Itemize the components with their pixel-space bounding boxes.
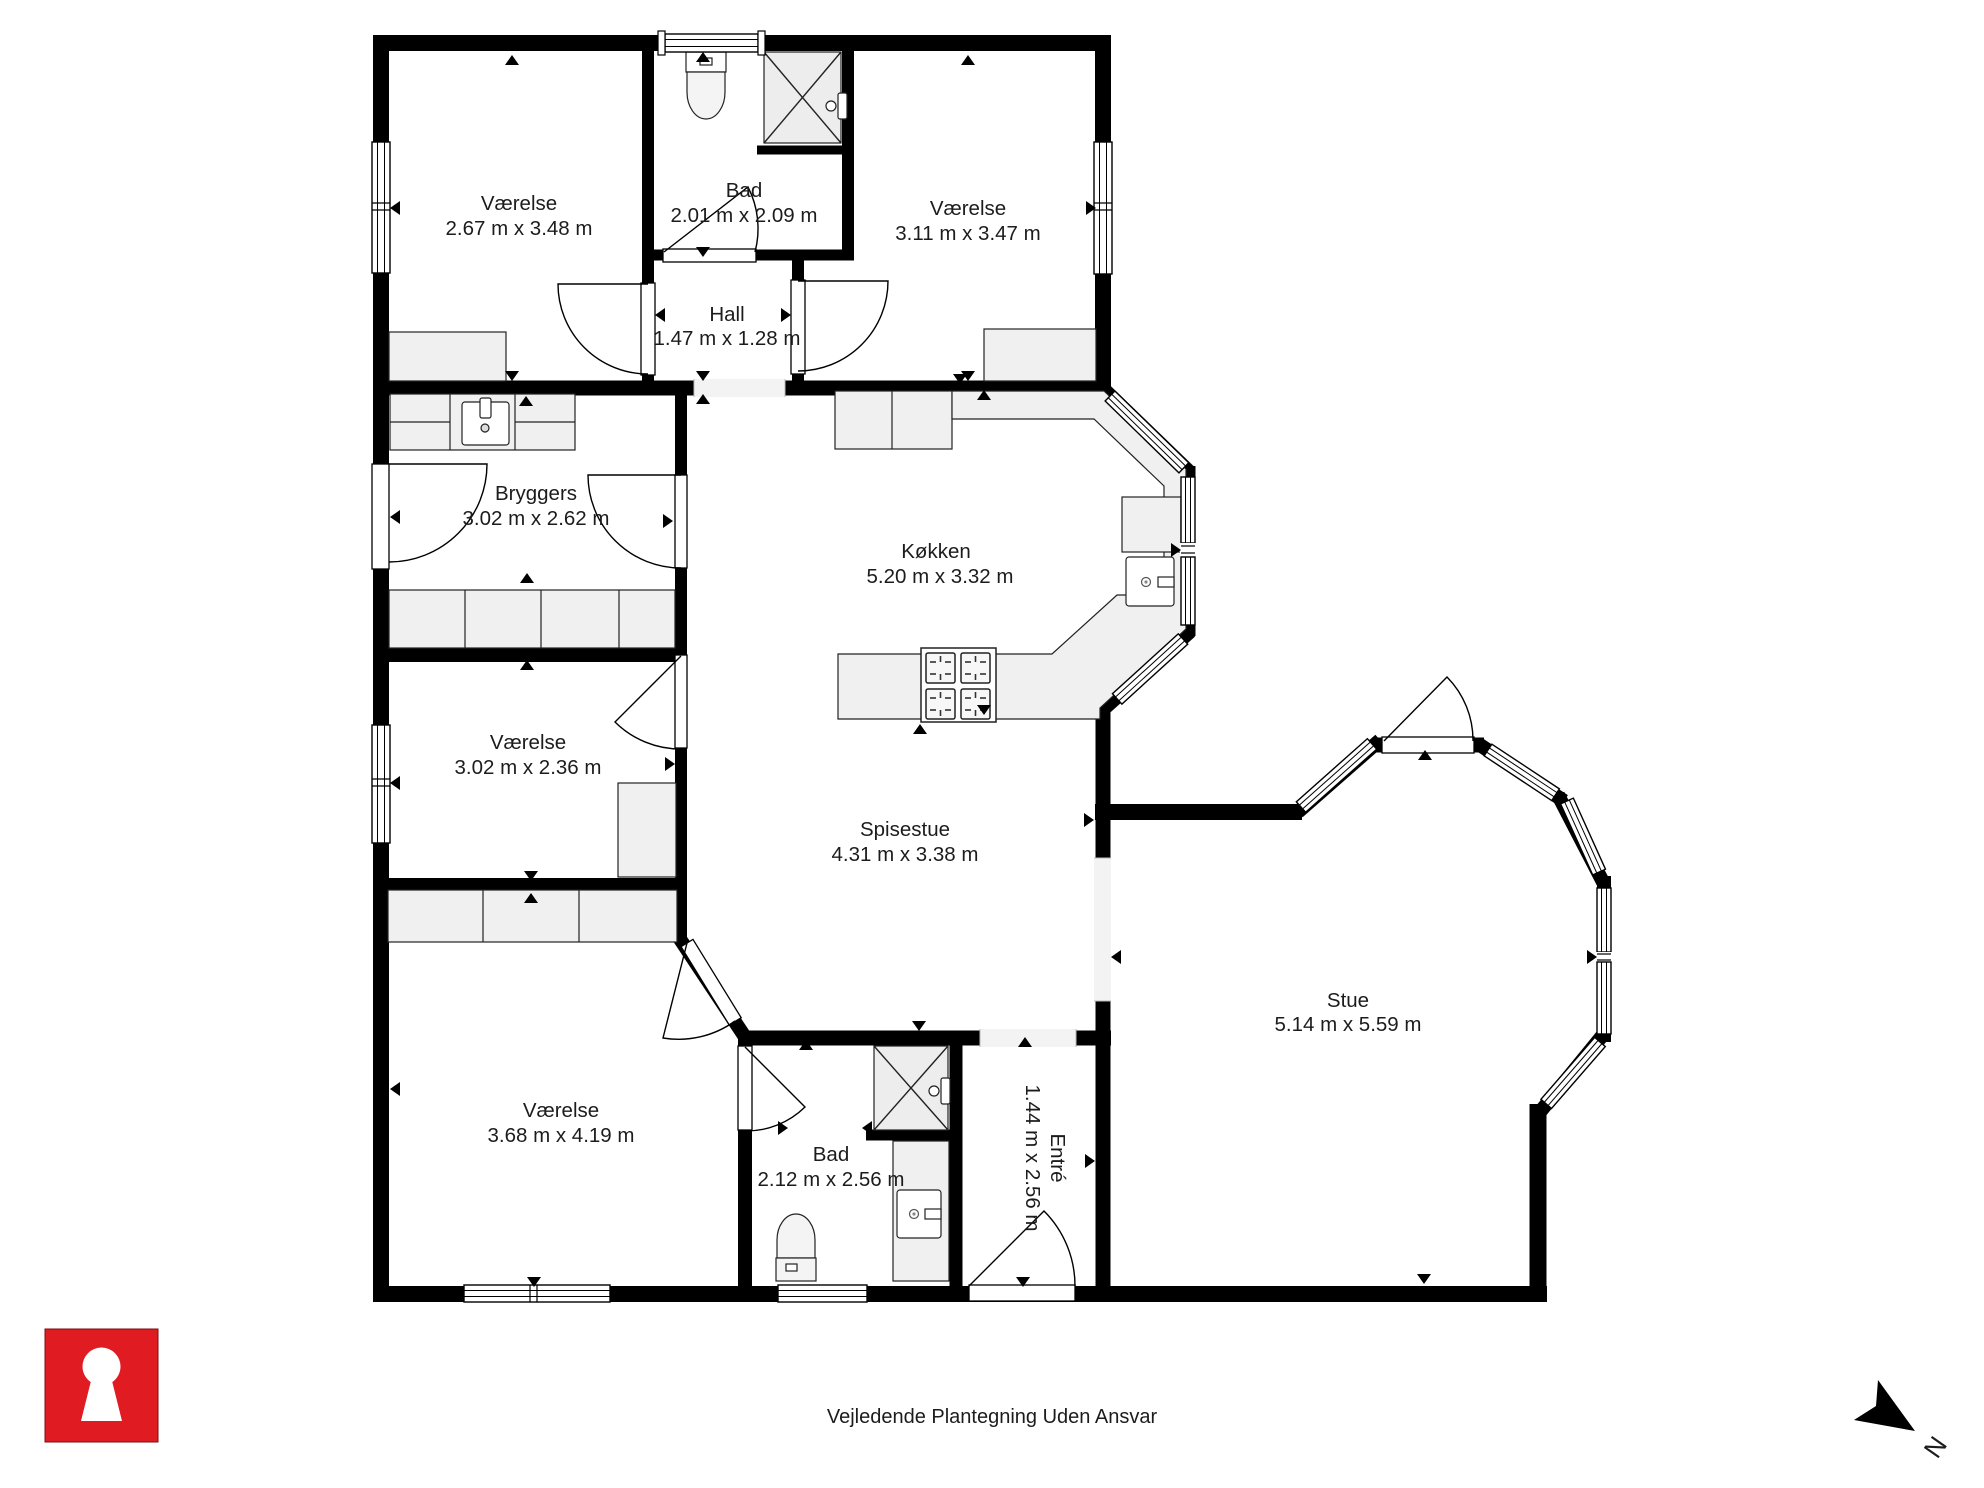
svg-text:Værelse: Værelse: [481, 192, 557, 215]
svg-text:4.31 m x 3.38 m: 4.31 m x 3.38 m: [832, 843, 979, 866]
svg-text:Stue: Stue: [1327, 989, 1369, 1012]
svg-text:3.02 m x 2.36 m: 3.02 m x 2.36 m: [455, 756, 602, 779]
svg-text:Værelse: Værelse: [523, 1099, 599, 1122]
svg-text:Hall: Hall: [709, 303, 744, 326]
svg-text:1.44 m x 2.56 m: 1.44 m x 2.56 m: [1021, 1085, 1044, 1232]
svg-text:Køkken: Køkken: [901, 540, 971, 563]
svg-text:2.67 m x 3.48 m: 2.67 m x 3.48 m: [446, 217, 593, 240]
svg-text:Bad: Bad: [726, 179, 762, 202]
svg-text:5.14 m x 5.59 m: 5.14 m x 5.59 m: [1275, 1013, 1422, 1036]
svg-text:3.11 m x 3.47 m: 3.11 m x 3.47 m: [895, 222, 1040, 245]
svg-text:2.01 m x 2.09 m: 2.01 m x 2.09 m: [671, 204, 818, 227]
svg-text:2.12 m x 2.56 m: 2.12 m x 2.56 m: [758, 1168, 905, 1191]
svg-text:3.68 m x 4.19 m: 3.68 m x 4.19 m: [488, 1124, 635, 1147]
svg-text:1.47 m x 1.28 m: 1.47 m x 1.28 m: [654, 327, 801, 350]
svg-text:3.02 m x 2.62 m: 3.02 m x 2.62 m: [463, 507, 610, 530]
svg-text:Spisestue: Spisestue: [860, 818, 950, 841]
svg-text:Bryggers: Bryggers: [495, 482, 577, 505]
svg-text:Vejledende Plantegning Uden An: Vejledende Plantegning Uden Ansvar: [827, 1406, 1158, 1428]
svg-text:5.20 m x 3.32 m: 5.20 m x 3.32 m: [867, 565, 1014, 588]
svg-text:Entré: Entré: [1046, 1134, 1069, 1183]
svg-text:Værelse: Værelse: [490, 731, 566, 754]
svg-text:Bad: Bad: [813, 1143, 849, 1166]
svg-text:Værelse: Værelse: [930, 197, 1006, 220]
